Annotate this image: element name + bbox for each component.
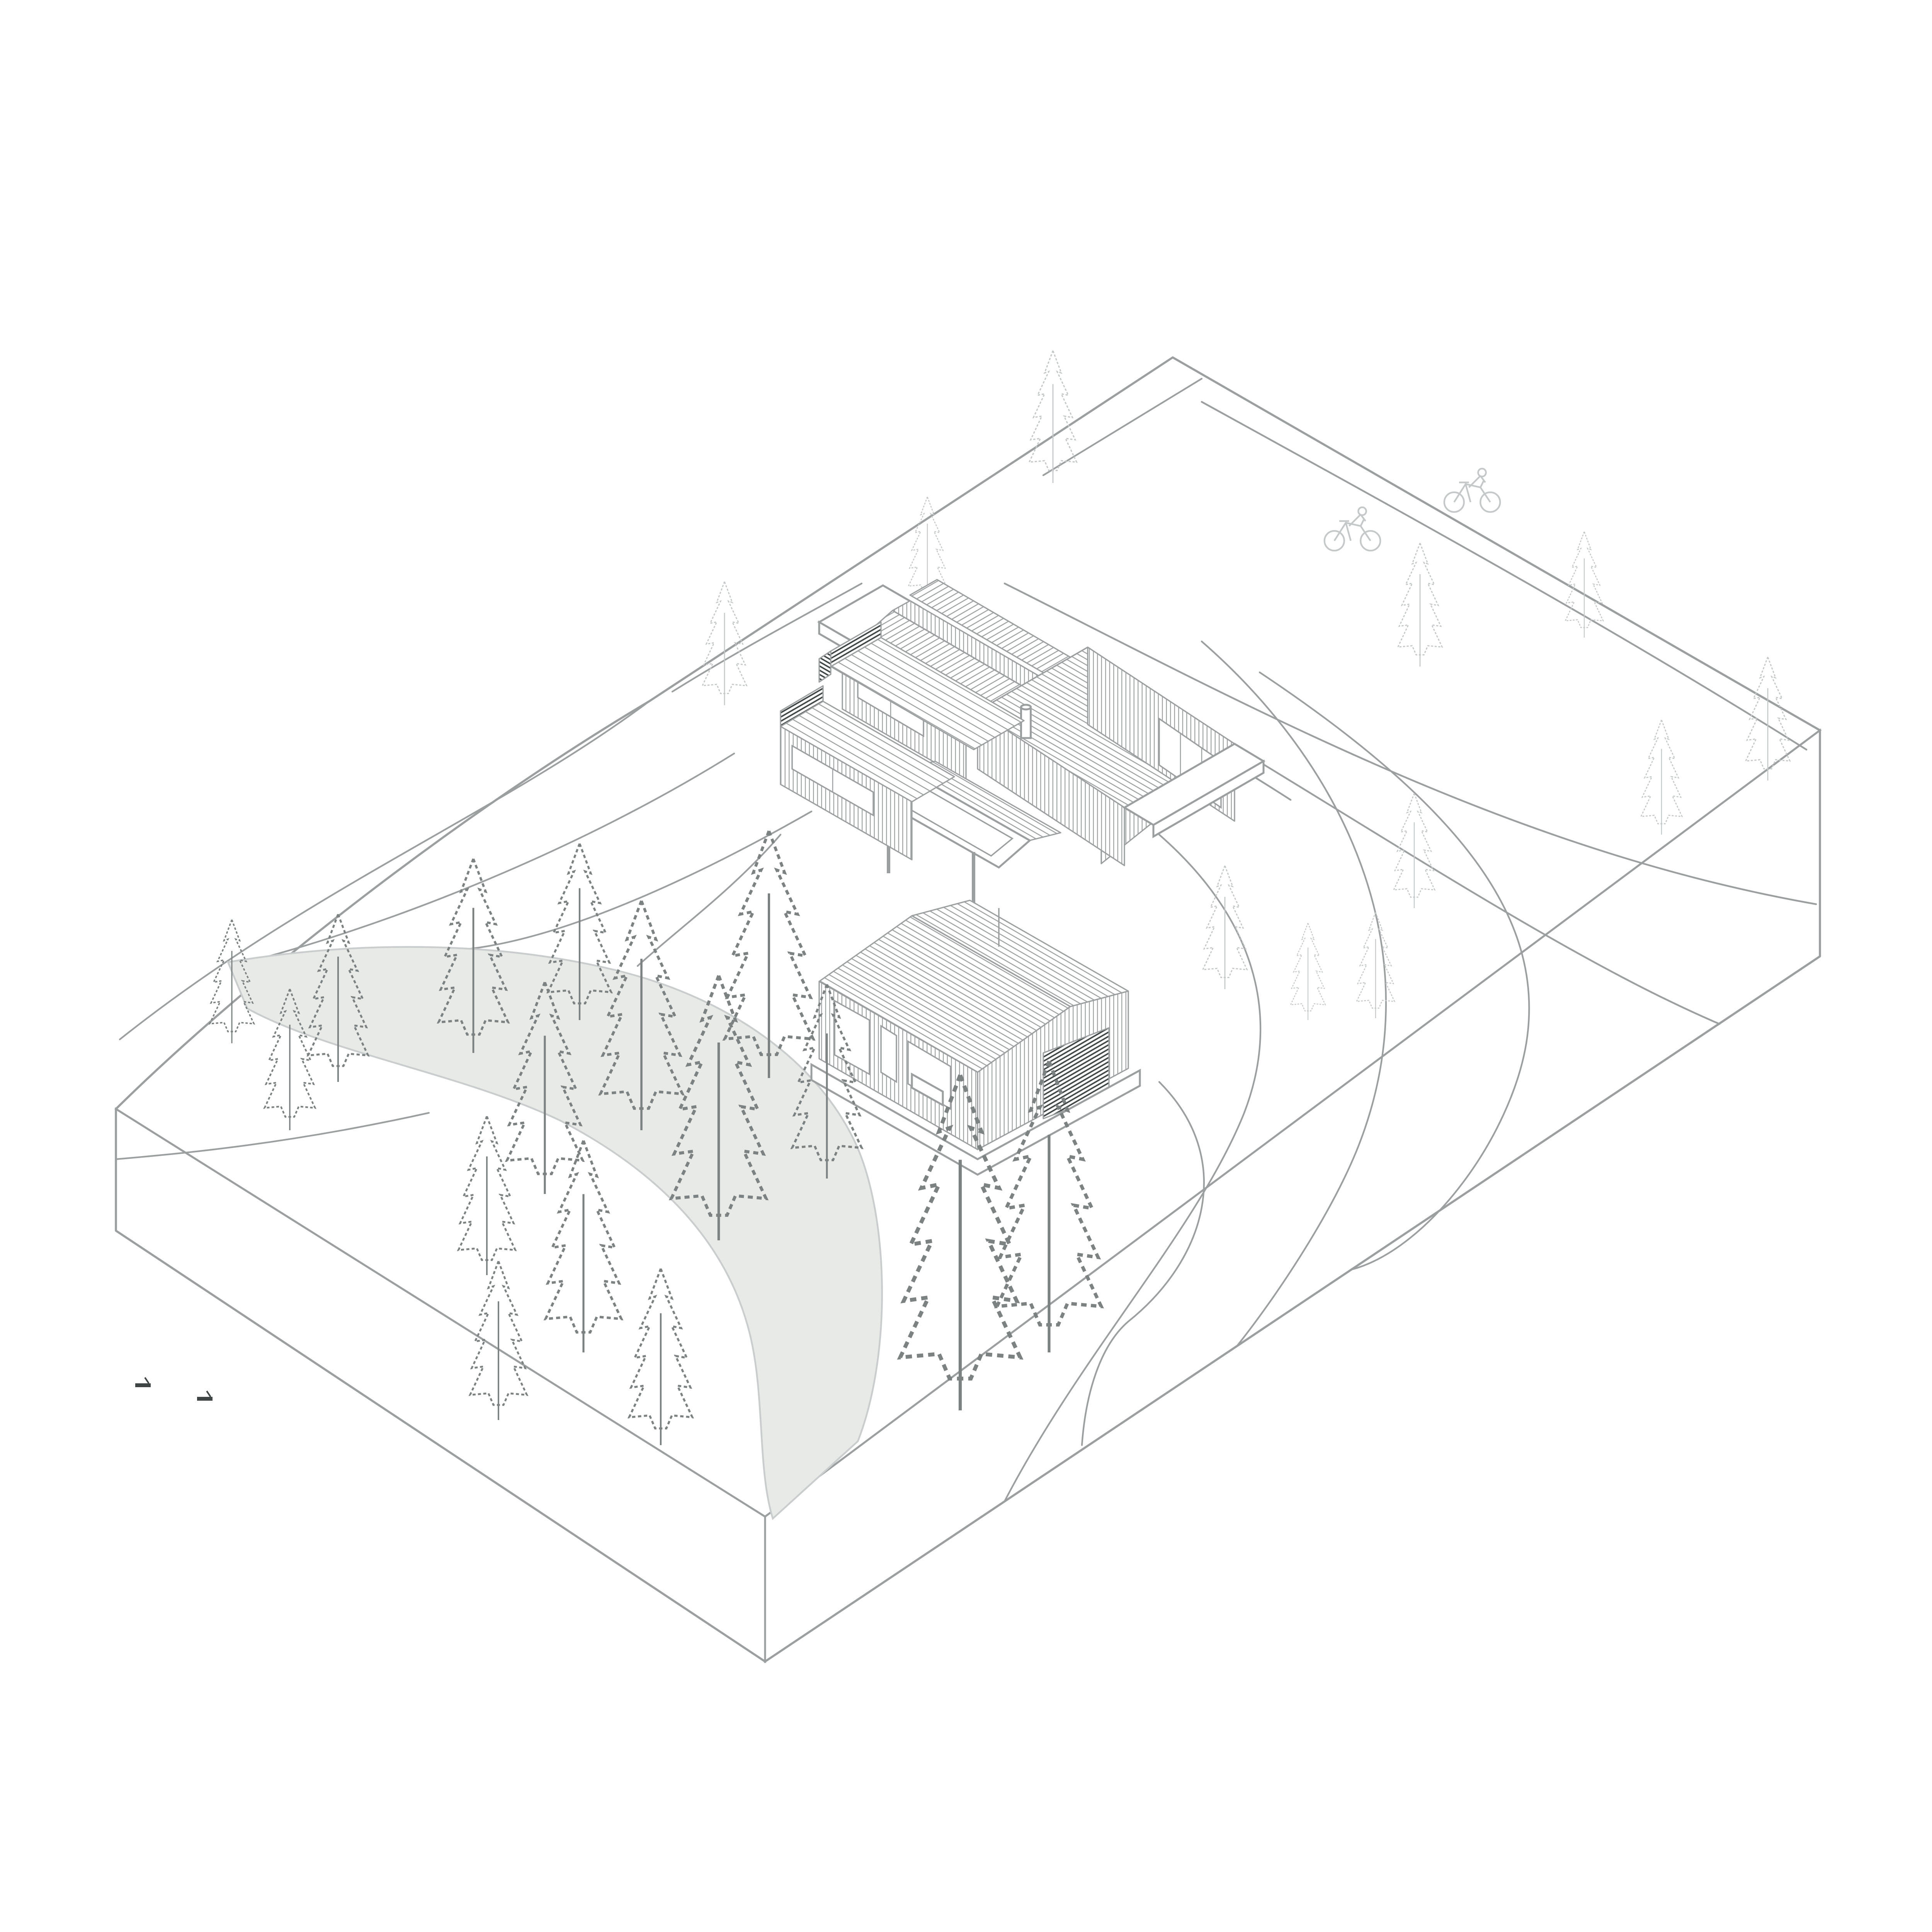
- ground-marks: [135, 1378, 213, 1399]
- ground-mark: [197, 1391, 213, 1399]
- drawing-canvas: [0, 0, 1932, 1932]
- ground-mark: [135, 1378, 151, 1385]
- axonometric-site-drawing: [0, 0, 1932, 1932]
- cyclist-icon: [1444, 469, 1500, 512]
- cabin-door: [881, 1026, 896, 1082]
